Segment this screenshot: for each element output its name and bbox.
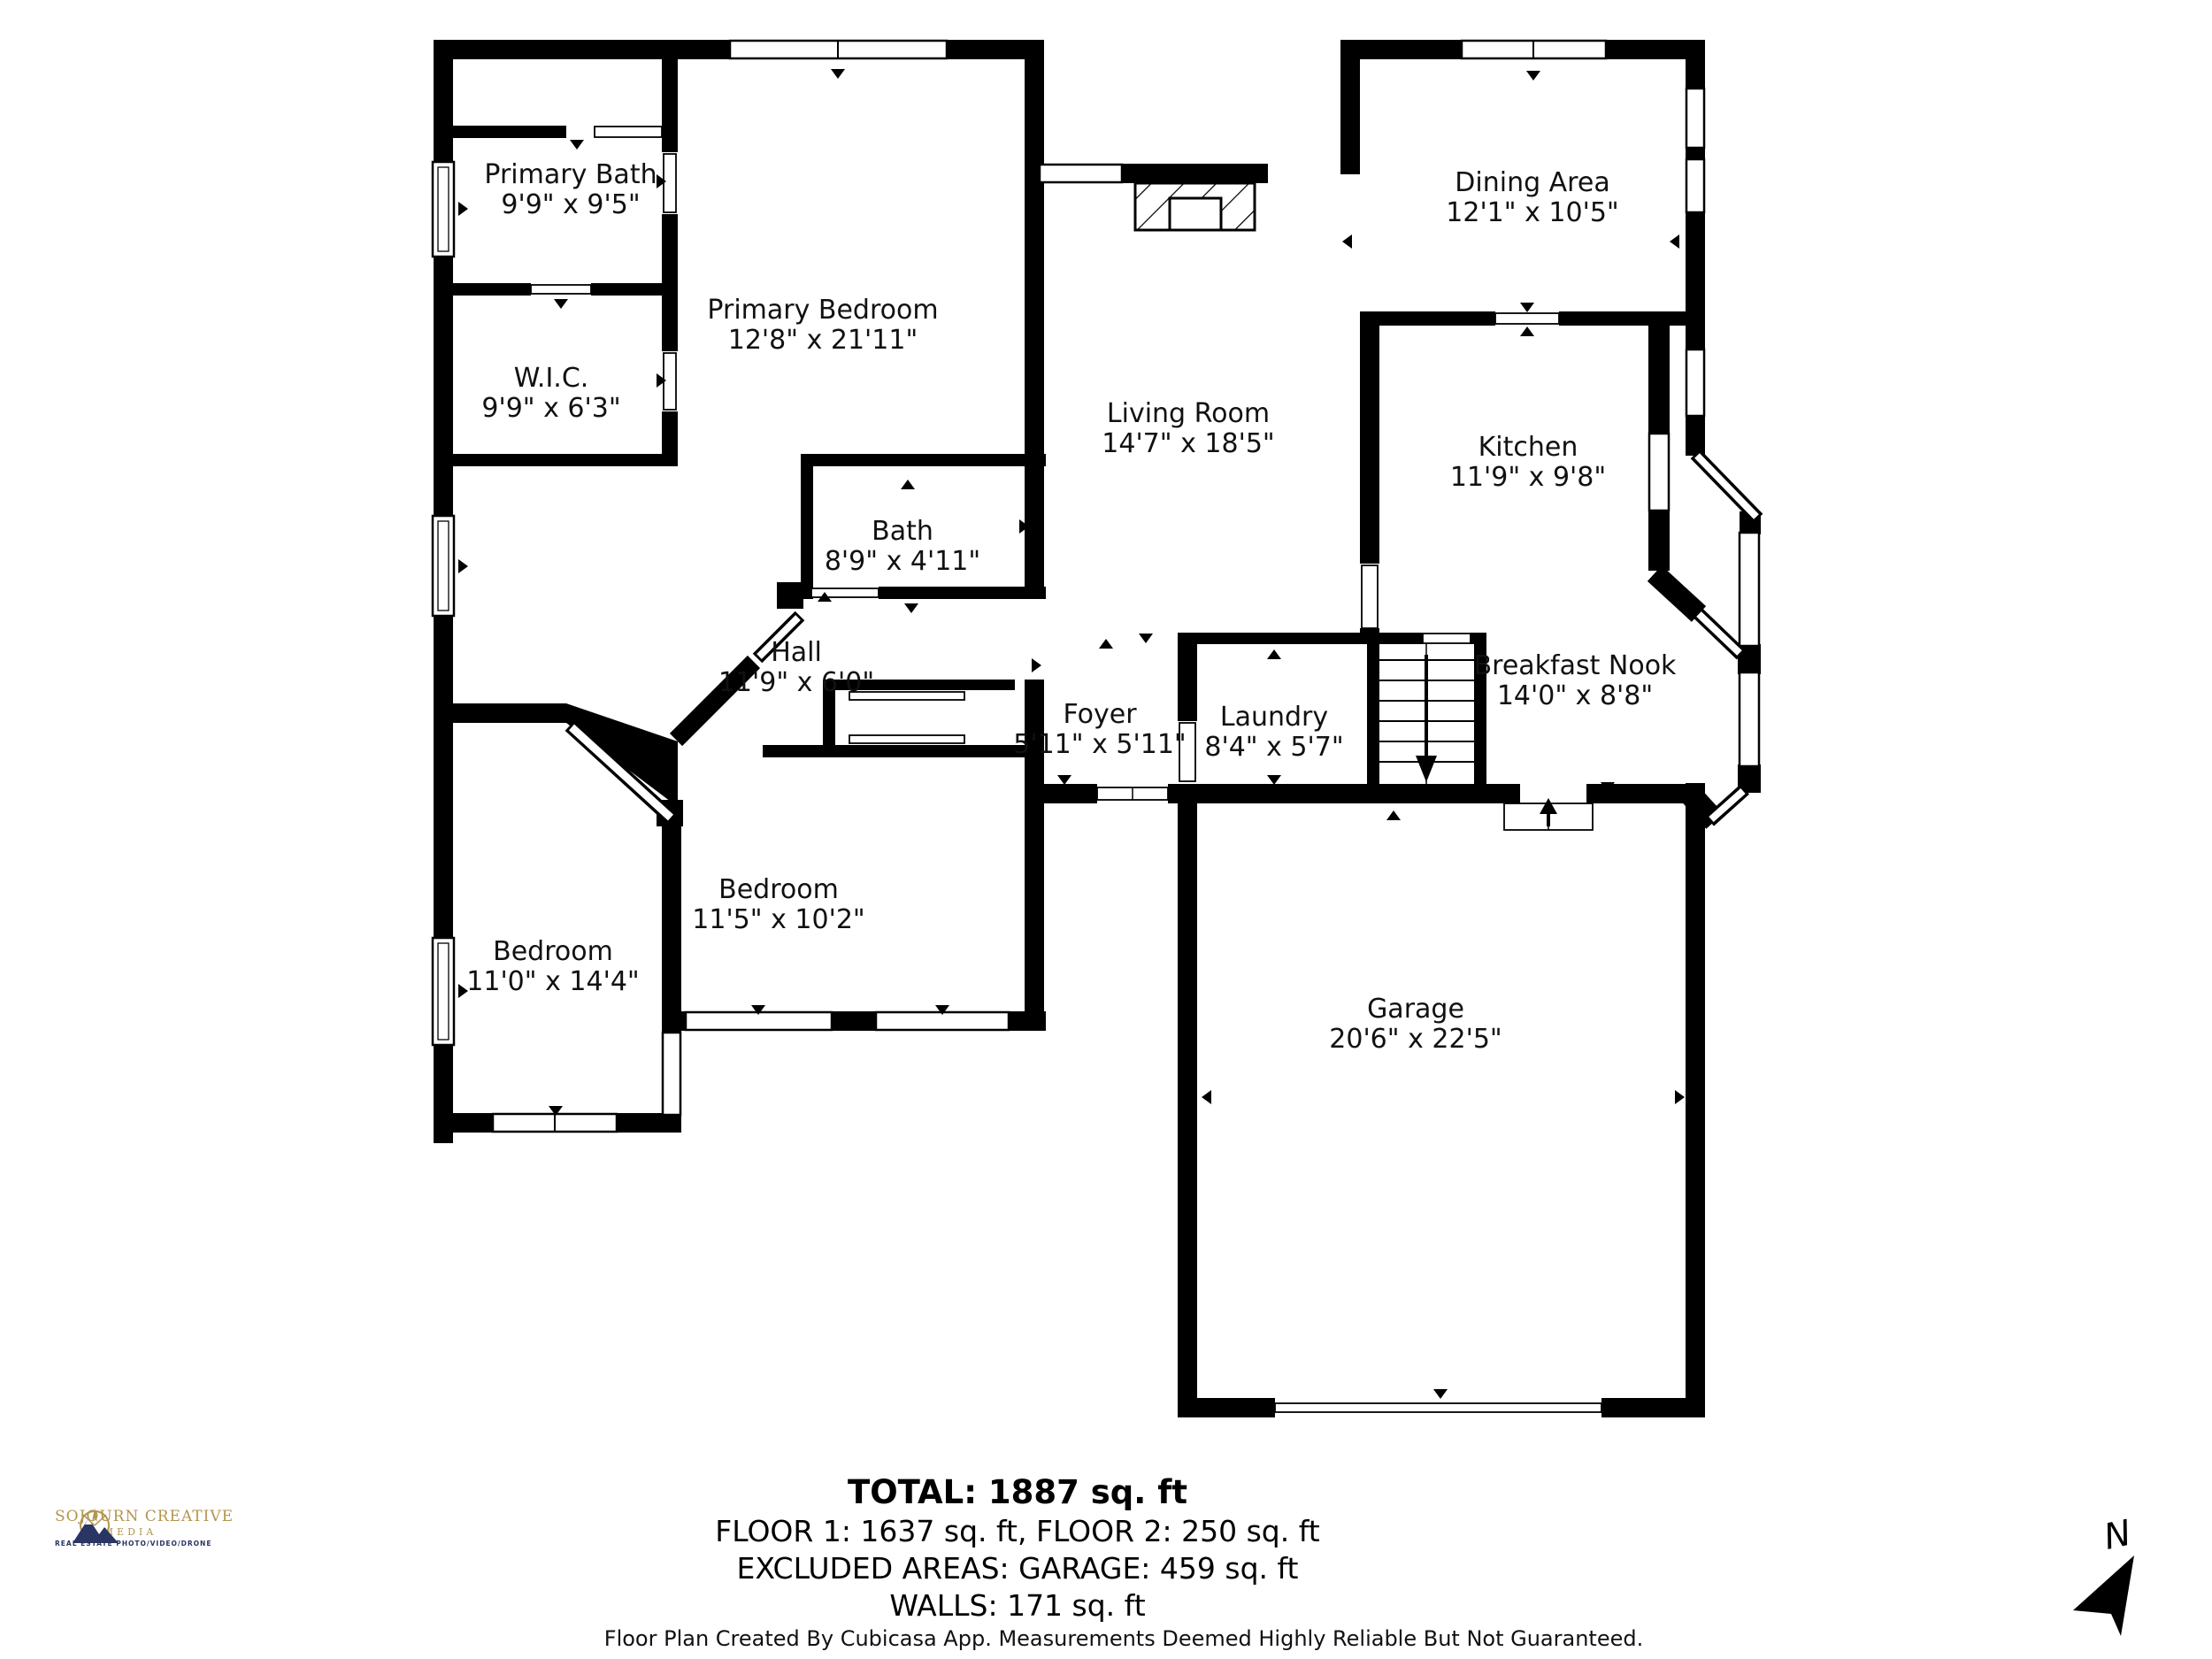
room-label: Primary Bath [484, 159, 657, 190]
room-dimensions: 12'8" x 21'11" [728, 325, 918, 356]
floor-plan-svg: Primary Bath9'9" x 9'5"W.I.C.9'9" x 6'3"… [0, 0, 2212, 1659]
area-summary: TOTAL: 1887 sq. ft FLOOR 1: 1637 sq. ft,… [0, 1476, 2035, 1620]
diagonal-doors-and-bay [570, 454, 1758, 821]
room-dimensions: 11'9" x 9'8" [1450, 462, 1606, 493]
room-label: Laundry [1220, 702, 1328, 733]
room-dimensions: 14'0" x 8'8" [1497, 680, 1653, 711]
garage-details [1275, 798, 1601, 1412]
room-label: Breakfast Nook [1474, 650, 1677, 681]
compass-label: N [2101, 1513, 2135, 1558]
room-dimensions: 8'9" x 4'11" [825, 546, 980, 577]
room-label: Primary Bedroom [707, 295, 938, 326]
room-label: Foyer [1063, 699, 1137, 730]
room-dimensions: 14'7" x 18'5" [1102, 428, 1274, 459]
room-label: Dining Area [1455, 167, 1609, 198]
room-dimensions: 20'6" x 22'5" [1329, 1024, 1502, 1055]
room-dimensions: 9'9" x 6'3" [481, 393, 620, 424]
total-area: TOTAL: 1887 sq. ft [0, 1476, 2035, 1509]
excluded-areas: EXCLUDED AREAS: GARAGE: 459 sq. ft [0, 1554, 2035, 1583]
room-label: Living Room [1107, 398, 1270, 429]
room-dimensions: 5'11" x 5'11" [1013, 729, 1186, 760]
floor-areas: FLOOR 1: 1637 sq. ft, FLOOR 2: 250 sq. f… [0, 1517, 2035, 1546]
north-arrow-icon: N [2073, 1513, 2135, 1636]
room-label: Bath [872, 516, 933, 547]
room-label: W.I.C. [514, 363, 589, 394]
floor-plan-page: Primary Bath9'9" x 9'5"W.I.C.9'9" x 6'3"… [0, 0, 2212, 1659]
room-label: Kitchen [1479, 432, 1578, 463]
room-dimensions: 11'5" x 10'2" [692, 904, 864, 935]
room-dimensions: 12'1" x 10'5" [1446, 197, 1618, 228]
disclaimer-text: Floor Plan Created By Cubicasa App. Meas… [128, 1626, 2119, 1651]
room-dimensions: 11'0" x 14'4" [466, 966, 639, 997]
room-label: Bedroom [493, 936, 613, 967]
room-dimensions: 8'4" x 5'7" [1204, 732, 1343, 763]
wall-area: WALLS: 171 sq. ft [0, 1591, 2035, 1620]
fireplace [1135, 183, 1255, 230]
room-dimensions: 9'9" x 9'5" [501, 189, 640, 220]
room-label: Garage [1367, 994, 1464, 1025]
room-dimensions: 11'9" x 6'0" [718, 667, 874, 698]
room-label: Bedroom [718, 874, 839, 905]
room-label: Hall [771, 637, 822, 668]
staircase [1379, 644, 1474, 784]
